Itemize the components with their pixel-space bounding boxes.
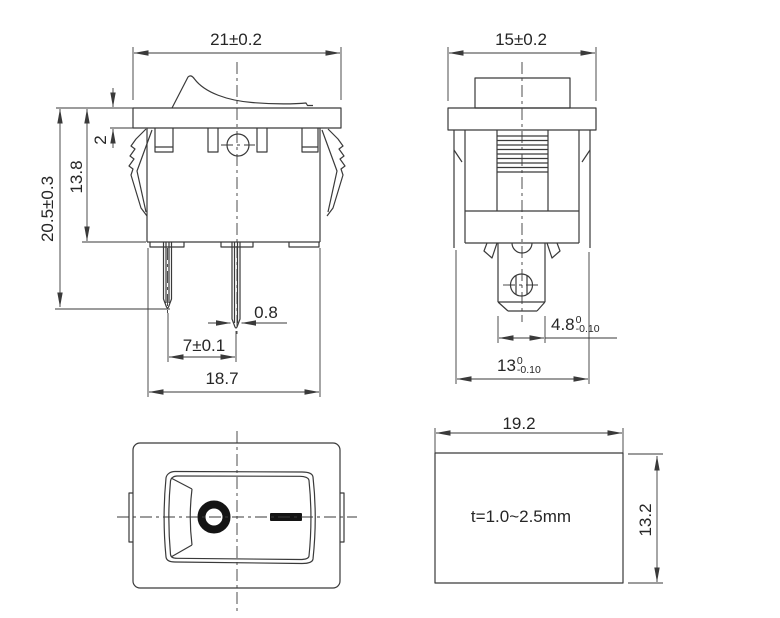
dim-side-body-width: 13 0 -0.10 bbox=[497, 356, 541, 375]
dim-terminal-width-tol-lower: -0.10 bbox=[576, 325, 600, 334]
dim-terminal-thickness: 0.8 bbox=[254, 304, 278, 322]
snap-clip-left-inner bbox=[137, 130, 152, 212]
drawing-linework bbox=[0, 0, 780, 618]
dim-front-width: 21±0.2 bbox=[210, 31, 262, 49]
terminal-pin-center bbox=[232, 242, 240, 328]
spring-ribs bbox=[497, 136, 548, 172]
dim-cutout-width: 19.2 bbox=[502, 415, 535, 433]
rocker-facet-lines bbox=[171, 478, 192, 557]
rocker-actuator-profile bbox=[172, 76, 313, 108]
top-view bbox=[117, 431, 357, 613]
side-tabs-top bbox=[129, 493, 344, 542]
dim-terminal-width: 4.8 0 -0.10 bbox=[551, 315, 600, 334]
dim-cutout-height: 13.2 bbox=[637, 503, 655, 536]
snap-clip-right-inner bbox=[322, 130, 337, 212]
flange-slots bbox=[155, 128, 318, 152]
dim-overall-height: 20.5±0.3 bbox=[39, 176, 57, 242]
panel-cutout-view bbox=[435, 428, 663, 583]
dim-side-body-width-tol-lower: -0.10 bbox=[517, 366, 541, 375]
dim-terminal-pitch: 7±0.1 bbox=[183, 337, 225, 355]
dim-side-body-width-value: 13 bbox=[497, 356, 516, 375]
dim-base-width: 18.7 bbox=[205, 370, 238, 388]
technical-drawing-canvas: 21±0.2 20.5±0.3 13.8 2 0.8 7±0.1 18.7 15… bbox=[0, 0, 780, 618]
dim-flange-thickness: 2 bbox=[92, 135, 110, 144]
dim-body-height: 13.8 bbox=[68, 160, 86, 193]
panel-thickness-note: t=1.0~2.5mm bbox=[471, 508, 571, 526]
dim-side-width: 15±0.2 bbox=[495, 31, 547, 49]
rocker-side bbox=[475, 78, 570, 108]
dim-terminal-width-value: 4.8 bbox=[551, 315, 575, 334]
